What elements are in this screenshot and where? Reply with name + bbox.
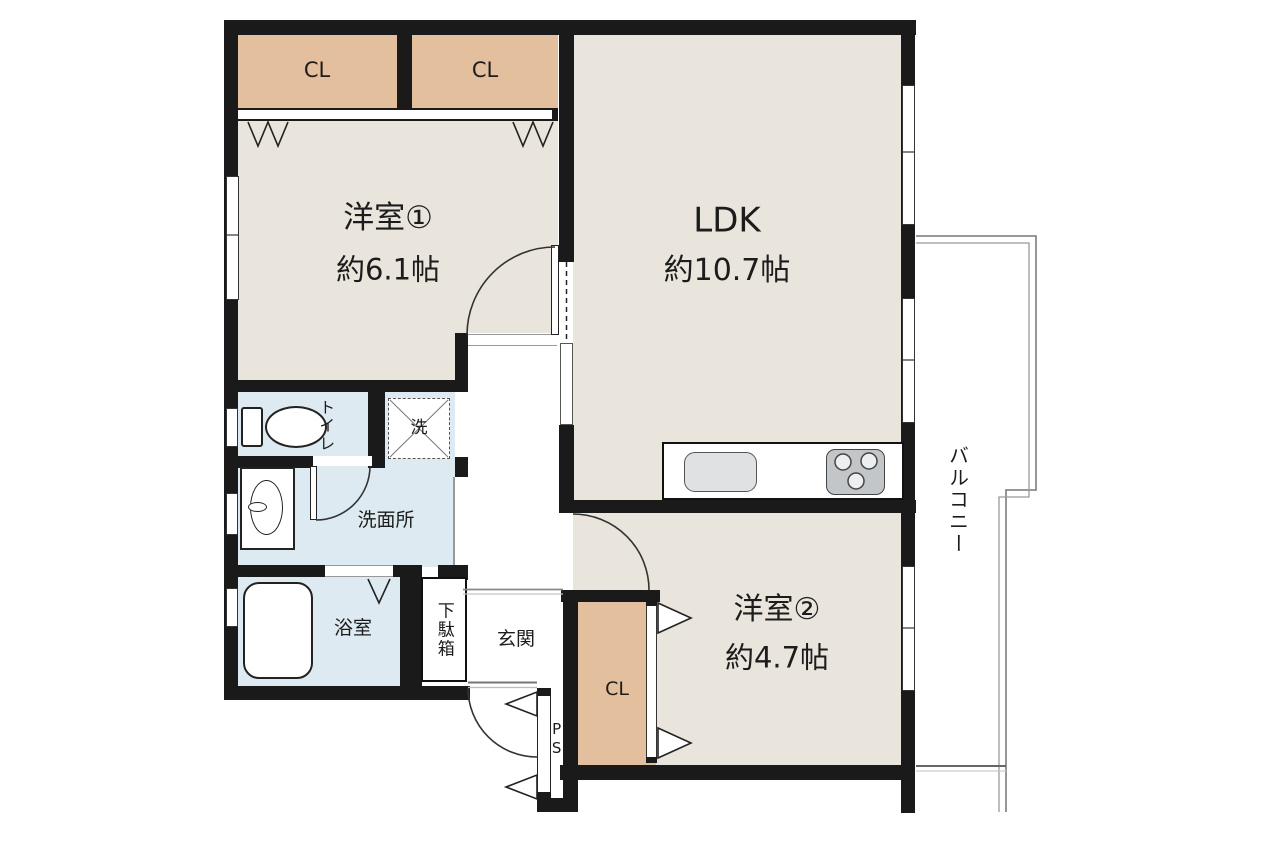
toilet-door-leaf	[310, 466, 317, 520]
closet-sliding-track	[238, 108, 558, 121]
shoe-cabinet-label: 下駄箱	[433, 602, 453, 659]
wall	[455, 457, 468, 477]
wall	[455, 333, 468, 392]
window	[226, 176, 239, 300]
wall	[537, 792, 551, 800]
window	[902, 298, 915, 423]
bathroom-label: 浴室	[334, 618, 372, 640]
yoshitsu2-door-opening	[562, 513, 573, 590]
closet3-door-strip	[646, 602, 657, 761]
closet2-label: CL	[472, 58, 498, 82]
toilet-label: トイレ	[316, 399, 334, 453]
yoshitsu2-size-label: 約4.7帖	[725, 641, 829, 674]
wall	[238, 380, 463, 392]
ldk-sliding-door	[560, 343, 573, 425]
ldk-sliding-pocket	[560, 262, 573, 343]
wall	[552, 108, 558, 121]
wall	[537, 688, 551, 696]
wall	[400, 568, 422, 686]
wall	[559, 500, 916, 513]
entrance-label: 玄関	[497, 629, 535, 651]
ldk-size-label: 約10.7帖	[664, 254, 791, 289]
wall	[238, 565, 325, 577]
toilet-tank-icon	[241, 407, 263, 447]
washroom-label: 洗面所	[357, 510, 414, 532]
kitchen-sink-icon	[684, 452, 757, 492]
wall	[646, 600, 657, 606]
bathtub-icon	[243, 582, 313, 679]
stove-icon	[826, 449, 885, 495]
yoshitsu2-name-label: 洋室②	[734, 593, 821, 628]
pipe-space-label: PS	[547, 720, 564, 758]
yoshitsu1-door-opening	[468, 334, 557, 346]
wall	[646, 757, 657, 763]
entrance-door-arc	[468, 688, 537, 757]
wall	[560, 765, 915, 780]
ldk-name-label: LDK	[693, 201, 760, 240]
window	[902, 566, 915, 691]
wall-closet-divider	[397, 24, 412, 110]
wall	[224, 686, 470, 700]
closet1-label: CL	[304, 58, 330, 82]
bathroom-door-opening	[325, 565, 393, 577]
washer-pan-label: 洗	[411, 419, 428, 439]
washroom-sliding-door	[453, 477, 462, 565]
window	[226, 588, 238, 627]
entrance-fold-triangle	[506, 692, 537, 716]
balcony-label: バルコニー	[946, 445, 969, 555]
wall	[559, 20, 574, 262]
balcony-outline	[916, 236, 1036, 812]
window	[226, 493, 238, 535]
window	[902, 85, 915, 225]
yoshitsu1-size-label: 約6.1帖	[336, 253, 440, 286]
entrance-fold-triangle	[506, 775, 537, 799]
window	[226, 408, 238, 447]
yoshitsu1-name-label: 洋室①	[343, 201, 433, 237]
closet3-label: CL	[605, 679, 629, 701]
wall	[563, 590, 578, 812]
toilet-door-opening	[313, 456, 372, 466]
yoshitsu1-door-leaf	[551, 245, 559, 335]
wall	[537, 798, 578, 812]
vanity-faucet-icon	[248, 502, 267, 512]
floor-plan: CL CL 洋室① 約6.1帖 LDK 約10.7帖 洋室② 約4.7帖 トイレ…	[0, 0, 1280, 850]
